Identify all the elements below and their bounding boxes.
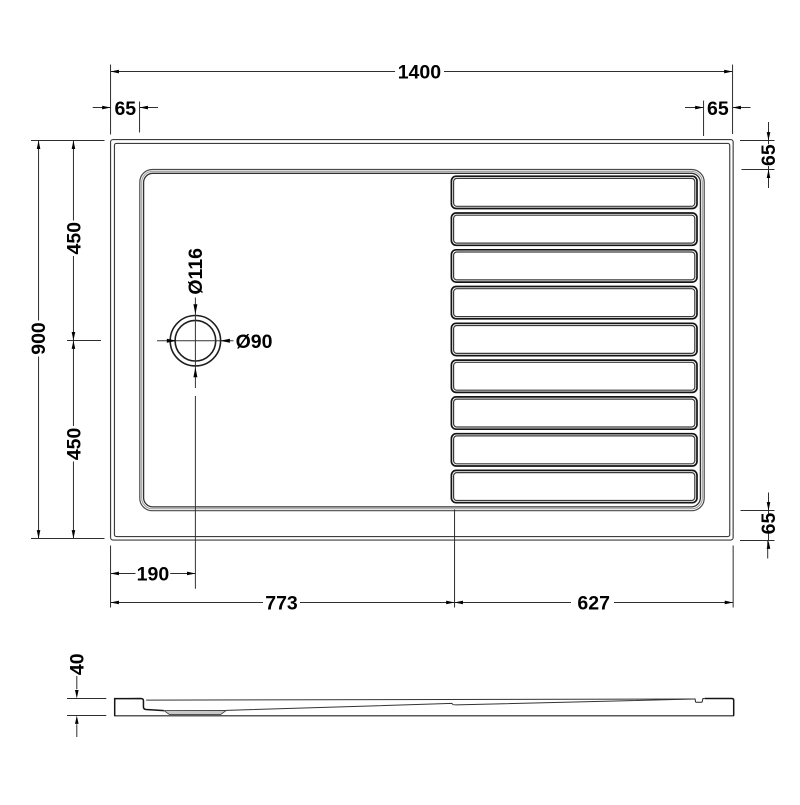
svg-text:190: 190	[137, 564, 170, 586]
svg-text:450: 450	[63, 222, 85, 255]
svg-text:900: 900	[28, 322, 50, 355]
svg-text:65: 65	[114, 98, 136, 120]
svg-text:65: 65	[758, 144, 780, 166]
svg-text:65: 65	[707, 98, 729, 120]
svg-text:65: 65	[758, 513, 780, 535]
svg-text:773: 773	[265, 593, 298, 615]
svg-text:Ø90: Ø90	[236, 331, 273, 353]
svg-text:Ø116: Ø116	[185, 248, 207, 295]
svg-text:1400: 1400	[398, 62, 442, 84]
svg-text:450: 450	[63, 427, 85, 460]
svg-text:627: 627	[577, 593, 610, 615]
svg-text:40: 40	[66, 653, 88, 675]
